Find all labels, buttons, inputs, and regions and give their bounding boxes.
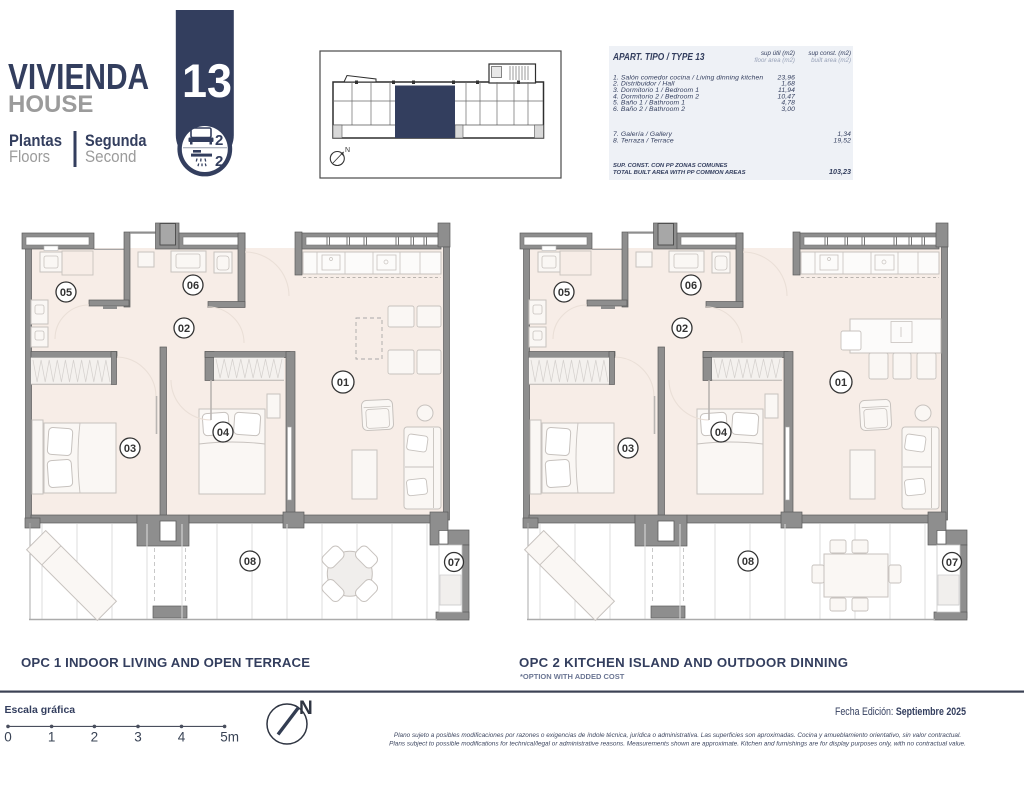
svg-text:02: 02 xyxy=(676,323,688,335)
svg-text:02: 02 xyxy=(178,323,190,335)
svg-text:OPC 2 KITCHEN ISLAND AND OUTDO: OPC 2 KITCHEN ISLAND AND OUTDOOR DINNING xyxy=(519,655,848,670)
svg-text:07: 07 xyxy=(448,557,460,569)
svg-text:06: 06 xyxy=(685,280,697,292)
svg-text:1: 1 xyxy=(48,730,56,745)
svg-text:08: 08 xyxy=(244,556,256,568)
svg-text:2: 2 xyxy=(215,153,223,170)
svg-text:Fecha Edición: Septiembre 2025: Fecha Edición: Septiembre 2025 xyxy=(835,706,966,718)
svg-text:103,23: 103,23 xyxy=(829,167,851,176)
svg-text:08: 08 xyxy=(742,556,754,568)
svg-text:HOUSE: HOUSE xyxy=(8,91,93,118)
svg-text:03: 03 xyxy=(622,443,634,455)
svg-text:Second: Second xyxy=(85,147,137,166)
svg-text:01: 01 xyxy=(835,377,847,389)
svg-text:built area (m2): built area (m2) xyxy=(811,57,851,64)
svg-text:Plano sujeto a posibles modifi: Plano sujeto a posibles modificaciones p… xyxy=(394,732,961,739)
svg-text:19,52: 19,52 xyxy=(833,138,851,145)
svg-text:floor area (m2): floor area (m2) xyxy=(754,57,795,64)
svg-text:APART. TIPO / TYPE 13: APART. TIPO / TYPE 13 xyxy=(612,51,704,62)
svg-text:N: N xyxy=(345,147,350,154)
svg-text:TOTAL BUILT AREA WITH PP COMMO: TOTAL BUILT AREA WITH PP COMMON AREAS xyxy=(613,170,746,176)
svg-text:13: 13 xyxy=(182,54,232,107)
svg-text:06: 06 xyxy=(187,280,199,292)
svg-text:3,00: 3,00 xyxy=(781,106,795,113)
svg-text:4: 4 xyxy=(178,730,186,745)
svg-text:05: 05 xyxy=(558,287,570,299)
svg-text:Floors: Floors xyxy=(9,147,50,166)
svg-text:2: 2 xyxy=(215,132,223,149)
svg-text:OPC 1 INDOOR LIVING AND OPEN T: OPC 1 INDOOR LIVING AND OPEN TERRACE xyxy=(21,655,310,670)
svg-text:0: 0 xyxy=(4,730,12,745)
svg-text:01: 01 xyxy=(337,377,349,389)
svg-text:Plans subject to possible modi: Plans subject to possible modifications … xyxy=(389,741,966,748)
svg-text:Escala gráfica: Escala gráfica xyxy=(5,704,76,716)
svg-text:N: N xyxy=(299,698,313,719)
svg-text:04: 04 xyxy=(715,427,728,439)
svg-text:3: 3 xyxy=(134,730,142,745)
svg-text:07: 07 xyxy=(946,557,958,569)
svg-text:*OPTION WITH ADDED COST: *OPTION WITH ADDED COST xyxy=(520,672,625,681)
svg-text:04: 04 xyxy=(217,427,230,439)
svg-text:05: 05 xyxy=(60,287,72,299)
svg-text:sup útil (m2): sup útil (m2) xyxy=(761,50,795,57)
svg-text:8. Terraza / Terrace: 8. Terraza / Terrace xyxy=(613,138,674,145)
svg-text:SUP. CONST. CON PP ZONAS COMUN: SUP. CONST. CON PP ZONAS COMUNES xyxy=(613,163,728,169)
svg-text:6. Baño 2 / Bathroom 2: 6. Baño 2 / Bathroom 2 xyxy=(613,106,685,113)
svg-text:5m: 5m xyxy=(220,730,239,745)
svg-text:03: 03 xyxy=(124,443,136,455)
svg-text:sup const. (m2): sup const. (m2) xyxy=(808,50,851,57)
svg-text:2: 2 xyxy=(91,730,99,745)
